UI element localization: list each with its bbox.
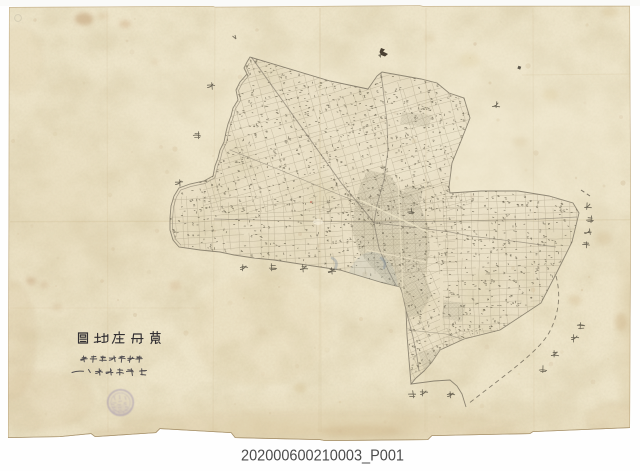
svg-text:202000600210003_P001: 202000600210003_P001 xyxy=(241,448,404,465)
